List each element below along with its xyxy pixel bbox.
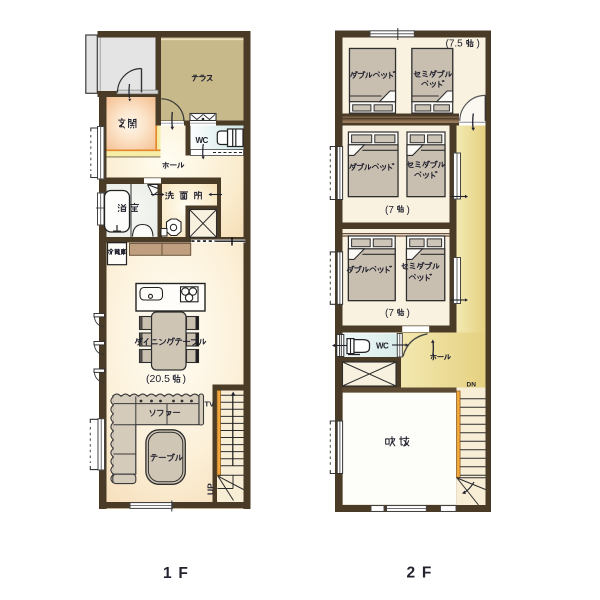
svg-text:): ) <box>183 373 187 385</box>
svg-text:): ) <box>407 308 410 319</box>
svg-text:): ) <box>477 39 480 50</box>
svg-text:(7: (7 <box>385 308 394 319</box>
svg-text:2 F: 2 F <box>407 565 433 582</box>
svg-text:UP: UP <box>206 483 216 495</box>
svg-text:(7.5: (7.5 <box>446 39 464 50</box>
svg-text:1 F: 1 F <box>163 565 189 582</box>
svg-text:(20.5: (20.5 <box>146 373 170 385</box>
svg-text:(7: (7 <box>385 205 394 216</box>
svg-text:DN: DN <box>467 382 477 389</box>
svg-text:WC: WC <box>196 136 209 145</box>
svg-text:WC: WC <box>376 342 389 351</box>
svg-text:): ) <box>407 205 410 216</box>
svg-text:TV: TV <box>205 400 215 409</box>
